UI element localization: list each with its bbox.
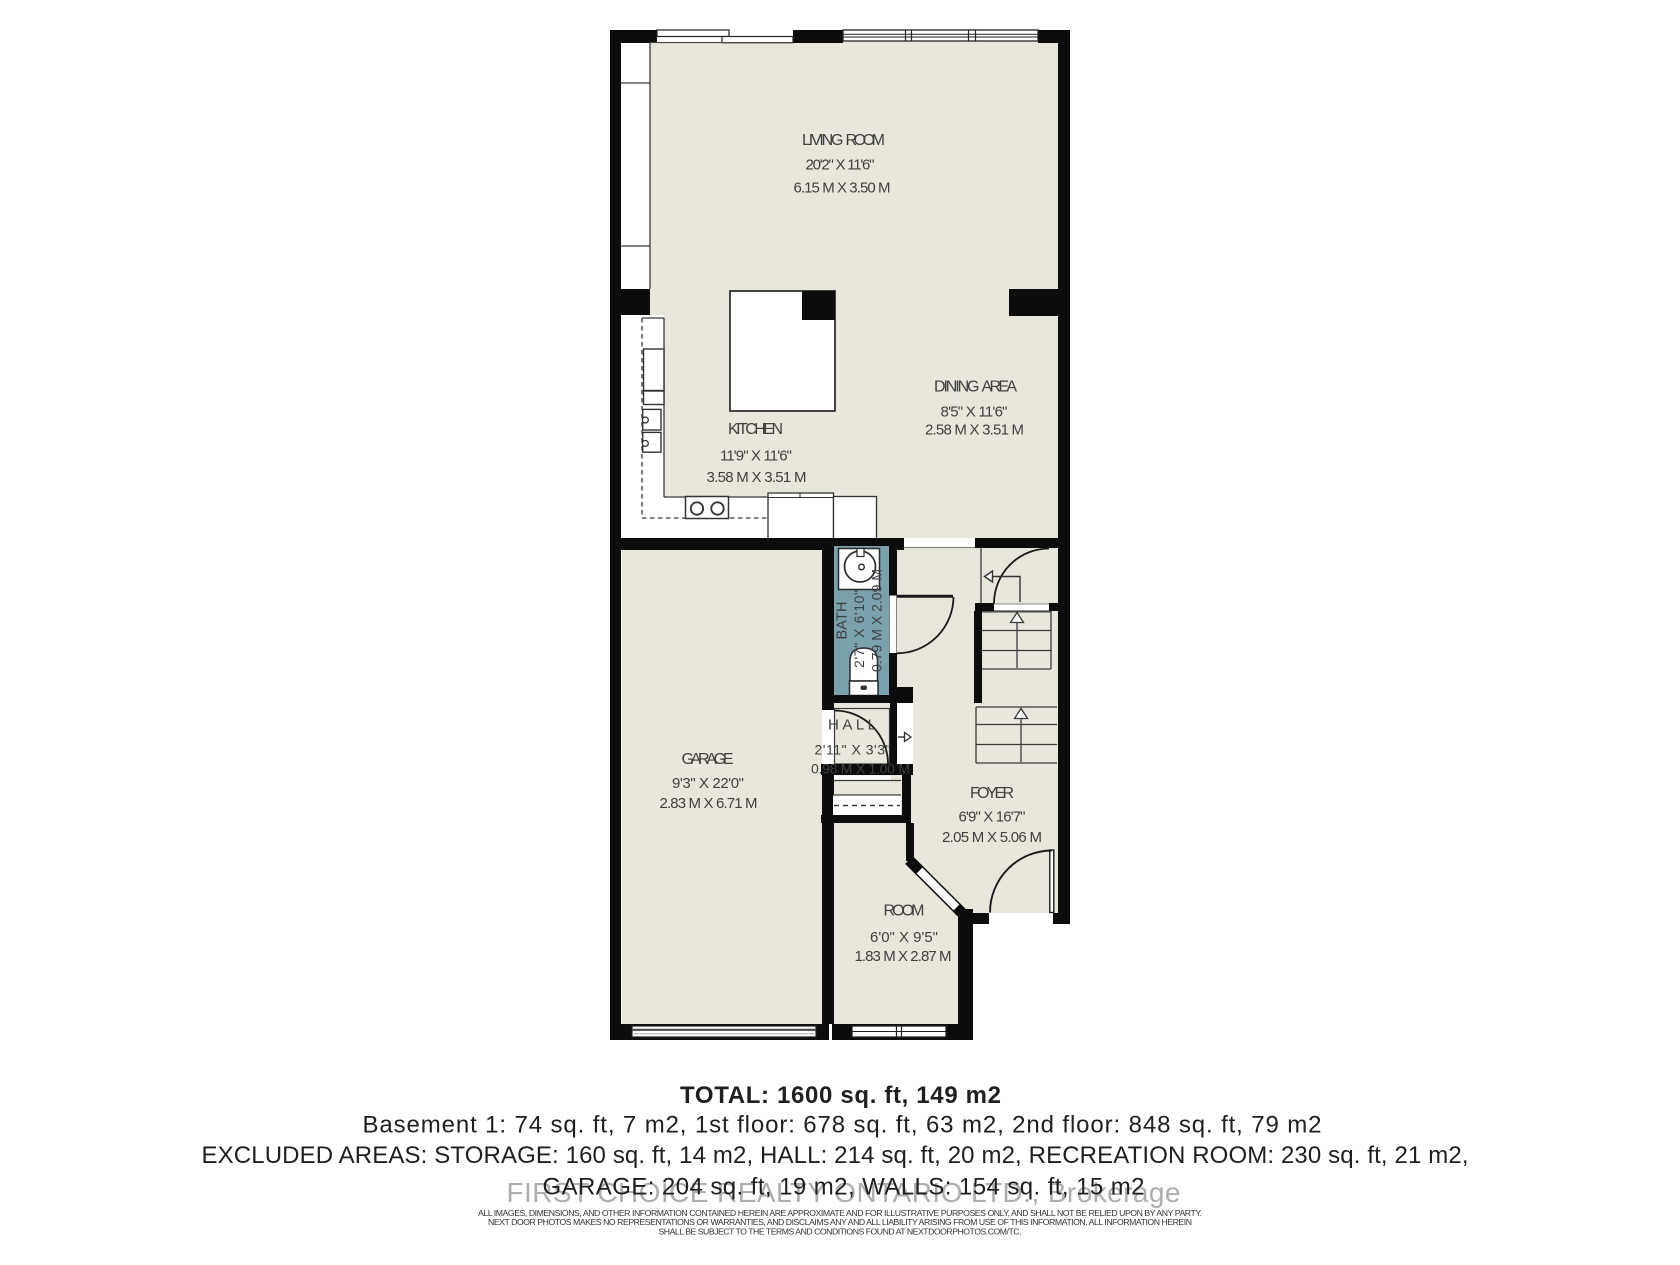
svg-text:BATH: BATH <box>835 602 851 640</box>
svg-text:20'2" X 11'6": 20'2" X 11'6" <box>806 157 875 174</box>
svg-text:11'9" X 11'6": 11'9" X 11'6" <box>720 448 792 465</box>
svg-text:FOYER: FOYER <box>970 785 1014 802</box>
svg-text:ROOM: ROOM <box>884 903 925 920</box>
svg-text:EXCLUDED AREAS: STORAGE: 160 s: EXCLUDED AREAS: STORAGE: 160 sq. ft, 14 … <box>202 1142 1469 1169</box>
svg-text:DINING: DINING <box>934 379 980 396</box>
svg-text:2.58 M X 3.51 M: 2.58 M X 3.51 M <box>925 422 1024 439</box>
svg-text:0.79 M X 2.09 M: 0.79 M X 2.09 M <box>869 569 885 672</box>
svg-text:KITCHEN: KITCHEN <box>728 421 783 438</box>
svg-text:2.83 M X 6.71 M: 2.83 M X 6.71 M <box>660 795 758 812</box>
svg-text:HALL: HALL <box>828 717 876 734</box>
svg-text:Basement 1: 74 sq. ft, 7 m2, 1: Basement 1: 74 sq. ft, 7 m2, 1st floor: … <box>363 1112 1322 1139</box>
svg-text:ROOM: ROOM <box>846 132 886 149</box>
svg-text:6'0" X 9'5": 6'0" X 9'5" <box>870 929 938 946</box>
svg-text:LIVING: LIVING <box>802 132 844 149</box>
svg-text:9'3" X 22'0": 9'3" X 22'0" <box>672 775 744 792</box>
svg-text:3.58 M X 3.51 M: 3.58 M X 3.51 M <box>707 469 807 486</box>
svg-text:2'7" X 6'10": 2'7" X 6'10" <box>851 590 867 668</box>
svg-text:GARAGE: 204 sq. ft, 19 m2, WAL: GARAGE: 204 sq. ft, 19 m2, WALLS: 154 sq… <box>543 1174 1145 1201</box>
svg-text:GARAGE: GARAGE <box>682 751 734 768</box>
svg-text:0.98 M X 1.00 M: 0.98 M X 1.00 M <box>811 761 910 777</box>
svg-text:SHALL BE SUBJECT TO THE TERMS: SHALL BE SUBJECT TO THE TERMS AND CONDIT… <box>659 1227 1022 1237</box>
svg-text:8'5" X 11'6": 8'5" X 11'6" <box>941 404 1008 421</box>
svg-text:1.83 M X 2.87 M: 1.83 M X 2.87 M <box>855 948 952 965</box>
svg-text:2.05 M X 5.06 M: 2.05 M X 5.06 M <box>942 829 1042 846</box>
svg-text:2'11" X 3'3": 2'11" X 3'3" <box>815 742 891 758</box>
svg-text:TOTAL: 1600 sq. ft, 149 m2: TOTAL: 1600 sq. ft, 149 m2 <box>680 1082 1001 1109</box>
svg-text:AREA: AREA <box>982 379 1018 396</box>
svg-text:6'9" X 16'7": 6'9" X 16'7" <box>959 809 1026 826</box>
svg-text:6.15 M X 3.50 M: 6.15 M X 3.50 M <box>794 180 891 197</box>
